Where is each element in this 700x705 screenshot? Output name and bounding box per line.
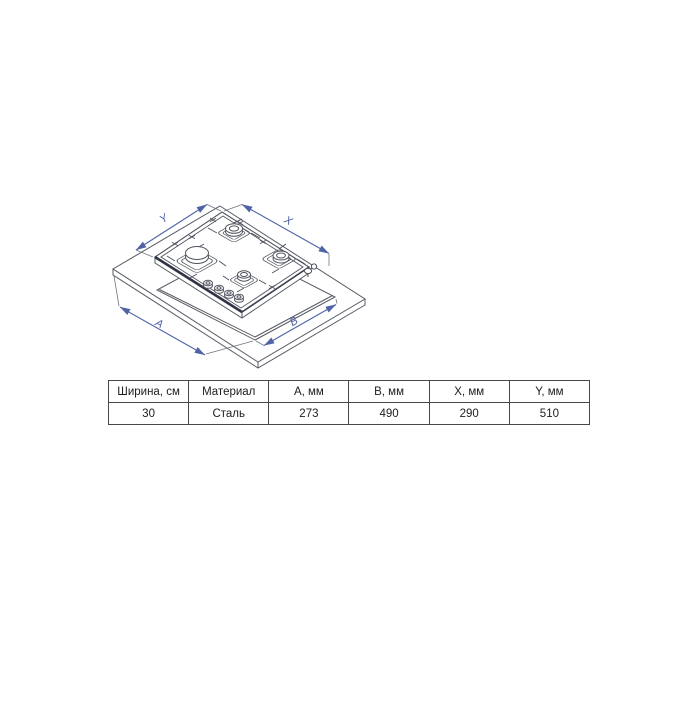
hob-dimension-diagram: Y X A B — [0, 0, 700, 700]
burner-back — [226, 224, 243, 237]
value-y-mm: 510 — [509, 403, 589, 425]
value-material: Сталь — [189, 403, 269, 425]
spec-table-value-row: 30 Сталь 273 490 290 510 — [109, 403, 590, 425]
header-material: Материал — [189, 381, 269, 403]
spec-table-header-row: Ширина, см Материал A, мм B, мм X, мм Y,… — [109, 381, 590, 403]
header-a-mm: A, мм — [269, 381, 349, 403]
burner-left-large — [186, 247, 209, 264]
header-x-mm: X, мм — [429, 381, 509, 403]
burner-front — [238, 271, 251, 281]
dimension-label-a: A — [152, 317, 165, 332]
header-width: Ширина, см — [109, 381, 189, 403]
dimension-label-y: Y — [158, 212, 171, 226]
value-width: 30 — [109, 403, 189, 425]
value-x-mm: 290 — [429, 403, 509, 425]
value-b-mm: 490 — [349, 403, 429, 425]
dimension-label-x: X — [281, 213, 295, 228]
header-b-mm: B, мм — [349, 381, 429, 403]
value-a-mm: 273 — [269, 403, 349, 425]
spec-table: Ширина, см Материал A, мм B, мм X, мм Y,… — [108, 380, 590, 425]
burner-right — [273, 251, 289, 263]
isometric-drawing: Y X A B — [0, 0, 700, 700]
page: { "diagram": { "labels": { "y": "Y", "x"… — [0, 0, 700, 700]
header-y-mm: Y, мм — [509, 381, 589, 403]
